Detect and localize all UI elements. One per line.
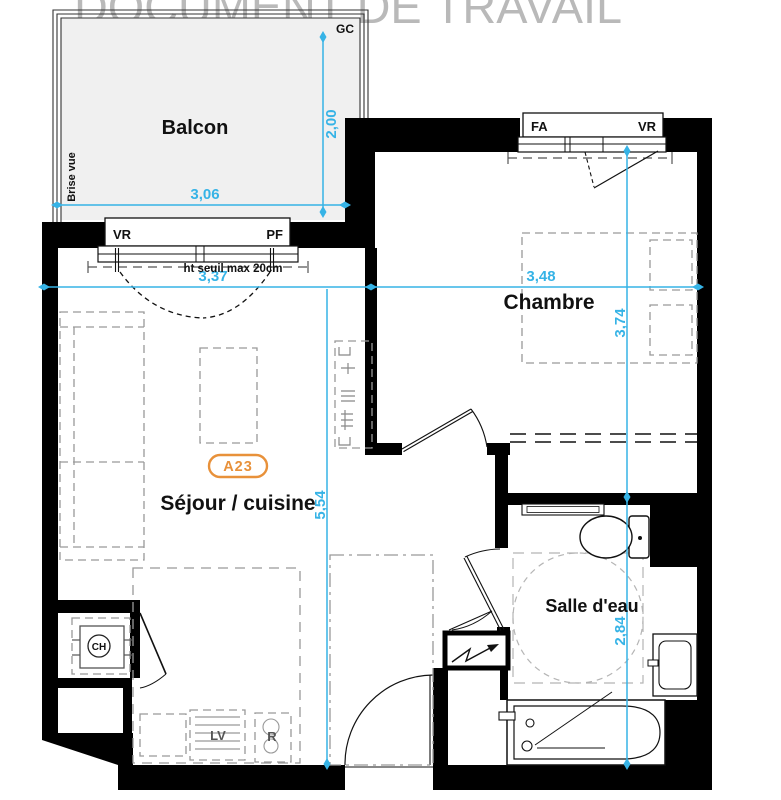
bedroom-window: FA VR [508, 113, 672, 188]
bedroom-window-glazing [518, 137, 666, 152]
bedroom-window-right-label: VR [638, 119, 657, 134]
living-window-left-label: VR [113, 227, 132, 242]
pillow-1 [650, 240, 692, 290]
towel-radiator [522, 504, 604, 515]
wall-bottom-left-step [42, 733, 133, 790]
dim-balcony-width: 3,06 [190, 186, 219, 203]
wall-living-bedroom [365, 248, 377, 443]
bathtub-tap [499, 712, 515, 720]
wardrobe-sliding-doors [510, 434, 697, 442]
wall-living-top-left [42, 222, 105, 248]
bedroom-window-sill [508, 152, 672, 164]
bedroom-label: Chambre [503, 291, 594, 314]
dim-bathroom-depth: 2,84 [612, 616, 629, 646]
tech-box-flap [449, 611, 492, 630]
coffee-table [200, 348, 257, 443]
wall-niche-jamb [123, 688, 132, 733]
wall-ch-closet-top [42, 600, 140, 613]
living-label: Séjour / cuisine [160, 492, 315, 515]
bathtub [499, 692, 665, 765]
dim-bedroom-depth: 3,74 [612, 308, 629, 338]
water-heater-label: CH [92, 642, 106, 653]
brise-vue-label: Brise vue [66, 152, 78, 202]
balcony-label: Balcon [162, 117, 229, 139]
wall-left [42, 222, 58, 738]
living-window-label-box [105, 218, 290, 246]
wall-hall-top-left [365, 443, 402, 455]
water-heater: CH [72, 626, 132, 668]
wall-ch-closet-jamb [130, 613, 140, 678]
wall-bottom-left [118, 765, 345, 790]
cabinet-appliance-glyphs [339, 347, 355, 445]
wall-balcony-bedroom [345, 118, 375, 248]
wall-entry-bath [433, 668, 448, 765]
kitchen-base-cabinet [140, 714, 186, 756]
wall-bath-corner-block [665, 700, 697, 765]
floor-plan-drawing: DOCUMENT DE TRAVAIL Balcon Brise vue [0, 0, 781, 800]
wall-right [697, 152, 712, 790]
pillow-2 [650, 305, 692, 355]
dishwasher-label: LV [210, 728, 226, 743]
threshold-label: ht seuil max 20cm [183, 263, 282, 275]
fridge-label: R [267, 729, 277, 744]
living-window-right-label: PF [266, 227, 283, 242]
gc-label: GC [336, 22, 354, 36]
toilet [580, 516, 649, 558]
wall-bottom-right [433, 765, 712, 790]
bedroom-window-left-label: FA [531, 119, 548, 134]
sofa [60, 312, 144, 560]
bathroom-door [464, 549, 504, 631]
sink [648, 634, 697, 696]
floor-plan-page: DOCUMENT DE TRAVAIL Balcon Brise vue [0, 0, 781, 800]
wall-ch-closet-mid [58, 678, 132, 688]
dim-bedroom-width: 3,48 [526, 268, 555, 285]
bedroom-window-casement-open [594, 151, 658, 188]
tech-box [445, 633, 508, 668]
wall-duct-block [650, 505, 697, 567]
bathroom-label: Salle d'eau [545, 596, 638, 616]
dim-balcony-depth: 2,00 [323, 109, 340, 138]
wall-hall-bath [495, 450, 508, 548]
bedroom-window-casement-swing [585, 152, 594, 187]
entry-door [345, 675, 434, 767]
wall-bathroom-top [508, 493, 712, 505]
unit-badge: A23 [209, 455, 267, 477]
entry-zone [330, 555, 433, 765]
unit-badge-label: A23 [223, 459, 253, 475]
water-heater-closet-door [140, 613, 166, 688]
wall-bedroom-top-right [662, 118, 712, 152]
bedroom-door [402, 409, 487, 452]
